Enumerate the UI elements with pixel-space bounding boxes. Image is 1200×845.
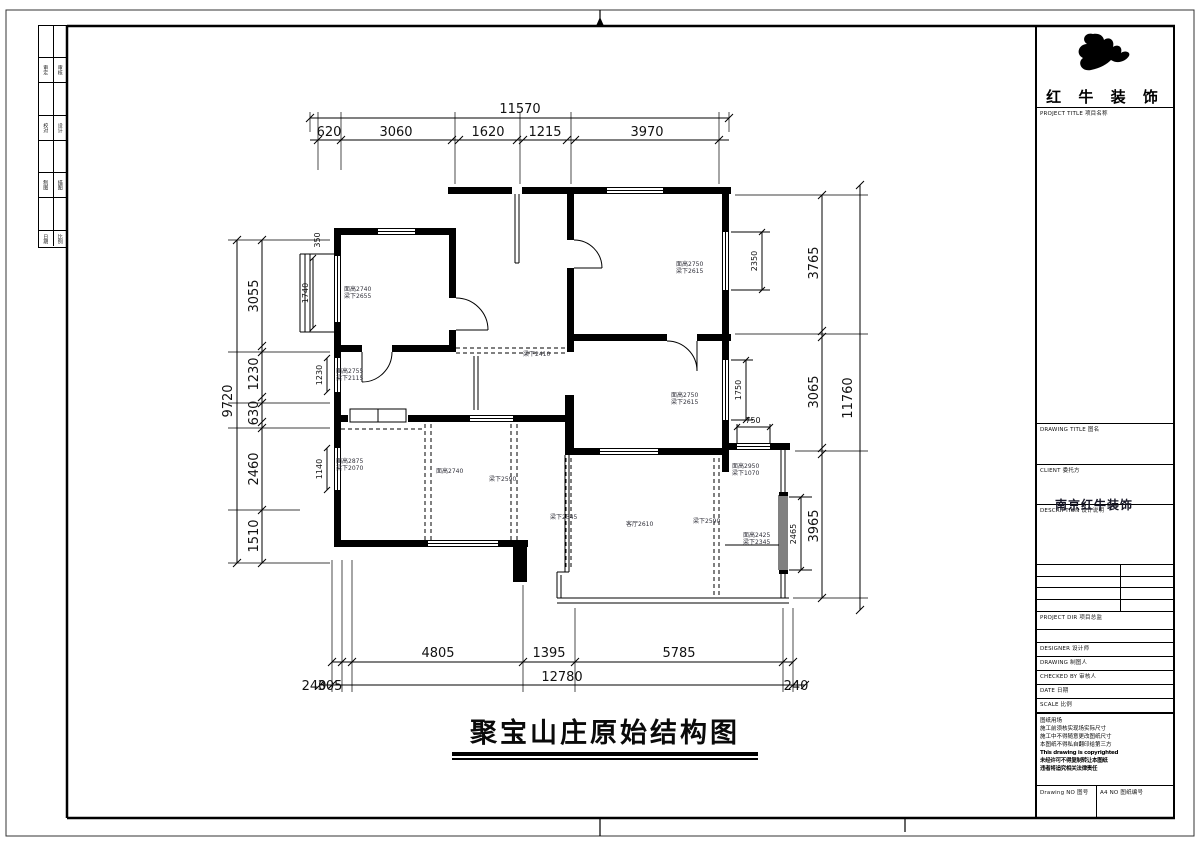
scale-row: SCALE 比例 [1037,699,1173,713]
drawing-sheet: 11570 620 3060 1620 1215 3970 9720 3055 … [0,0,1200,845]
window-750 [737,444,770,450]
note-line: This drawing is copyrighted [1040,749,1170,757]
strip-row: 审定 审核 [39,58,67,83]
beam-corridor [456,348,567,353]
strip-row-empty [39,83,67,116]
dim-1740 [310,255,316,331]
dim-label: 305 [318,679,343,694]
description-section: 南京红牛装饰 DESCRIPTION 设计说明 [1037,505,1173,565]
note-line: 未经许可不得复制转让本图纸 [1040,757,1170,765]
room-annotation: 梁下2590 [489,475,516,483]
date-row: DATE 日期 [1037,685,1173,699]
note-line: 图纸用场 [1040,717,1170,725]
revision-table [1037,565,1173,612]
room-annotation: 梁下2410 [523,350,550,358]
room-annotation: 面高2755 [336,367,363,375]
room-annotation: 面高2950 [732,462,759,470]
dim-label: 1750 [734,380,743,400]
dim-label: 1510 [247,519,262,552]
strip-cell: 审核 [54,58,68,82]
walls [334,187,790,582]
notes-section: 图纸用场 施工前须核实现场实际尺寸 施工中不得随意更改图纸尺寸 本图纸不得私自翻… [1037,713,1173,786]
door-topright-room [574,240,602,268]
dim-label: 3965 [807,509,822,542]
dim-label: 1230 [315,365,324,385]
room-annotation: 梁下2345 [743,538,770,546]
dim-label: 350 [313,232,322,247]
dim-label: 3970 [630,125,663,140]
dim-label: 9720 [221,384,236,417]
strip-cell: 日期 [39,231,54,246]
hall-door-leaf [474,356,478,410]
beam-lowerleft-1 [425,424,431,540]
company-stamp: 南京红牛装饰 [1055,496,1133,513]
dim-label: 12780 [541,670,582,685]
dim-label: 2460 [247,452,262,485]
dim-label: 620 [317,125,342,140]
note-line: 违者将追究相关法律责任 [1040,765,1170,773]
dim-label: 4805 [421,646,454,661]
dashed-beams [341,348,719,595]
dim-label: 1230 [247,357,262,390]
company-logo [1037,26,1173,86]
room-annotation: 梁下2590 [693,517,720,525]
dim-1230 [324,355,330,395]
window-living-right-2465 [779,495,787,570]
revision-strip: 审定 审核 校对 设计 制图 描图 日期 比例 [38,25,68,248]
strip-cell: 校对 [39,116,54,140]
dim-label: 630 [247,401,262,426]
door-entry-side [456,298,488,330]
dim-label: 3060 [379,125,412,140]
room-annotations: 面高2740 梁下2655 面高2750 梁下2615 面高2755 梁下211… [336,260,770,546]
dim-label: 1215 [528,125,561,140]
witness-top [310,112,729,184]
room-annotation: 梁下2615 [676,267,703,275]
entry-door-leaf [515,194,519,263]
room-annotation: 梁下2070 [336,464,363,472]
witness-left [228,240,330,563]
dim-1140 [324,445,330,493]
drawing-title-section: DRAWING TITLE 图名 [1037,424,1173,465]
note-line: 施工前须核实现场实际尺寸 [1040,725,1170,733]
drawing-no-section: Drawing NO 图号 A4 NO 图纸编号 [1037,786,1173,818]
checked-label: CHECKED BY 审核人 [1040,674,1096,680]
note-line: 施工中不得随意更改图纸尺寸 [1040,733,1170,741]
strip-row-empty [39,26,67,58]
strip-cell: 制图 [39,173,54,197]
title-underline-thick [452,752,758,756]
checked-row: CHECKED BY 审核人 [1037,671,1173,685]
spacer-row [1037,630,1173,643]
a4-no-label: A4 NO 图纸编号 [1100,790,1143,796]
dimension-lines [228,112,868,692]
strip-row: 制图 描图 [39,173,67,198]
beam-living-right [714,458,719,595]
dim-line-top [310,118,729,140]
scale-label: SCALE 比例 [1040,702,1072,708]
room-annotation: 梁下2115 [336,374,363,382]
room-annotation: 面高2750 [676,260,703,268]
bull-logo-icon [1073,30,1137,82]
project-title-label: PROJECT TITLE 项目名称 [1040,111,1108,117]
drawing-row: DRAWING 制图人 [1037,657,1173,671]
window-entry-top [607,188,663,194]
drawing-title-label: DRAWING TITLE 图名 [1040,427,1099,433]
project-title-section: PROJECT TITLE 项目名称 [1037,108,1173,424]
strip-row-empty [39,198,67,231]
strip-cell: 描图 [54,173,68,197]
room-annotation: 面高2750 [671,391,698,399]
room-annotation: 梁下2655 [344,292,371,300]
window-living-top [600,449,658,455]
room-annotation: 面高2740 [436,467,463,475]
window-left-bay-wall [335,256,341,322]
sliding-door-panel-2 [378,409,406,422]
project-dir-label: PROJECT DIR 项目总监 [1040,615,1102,621]
window-bottomleft [428,541,498,547]
main-frame [67,26,1175,818]
dim-label: 750 [745,416,760,425]
strip-row-empty [39,141,67,173]
room-annotation: 面高2875 [336,457,363,465]
drawing-label: DRAWING 制图人 [1040,660,1087,666]
room-annotation: 梁下2615 [671,398,698,406]
dim-label: 11570 [499,102,540,117]
dim-label: 3765 [807,246,822,279]
window-mid-partition [470,416,513,422]
project-dir-row: PROJECT DIR 项目总监 [1037,612,1173,630]
strip-row: 校对 设计 [39,116,67,141]
room-annotation: 梁下2345 [550,513,577,521]
strip-cell: 设计 [54,116,68,140]
window-room1-top [378,229,415,235]
top-center-mark [596,17,604,26]
room-annotation: 面高2425 [743,531,770,539]
designer-row: DESIGNER 设计师 [1037,643,1173,657]
dim-label: 2350 [750,251,759,271]
dim-label: 1740 [301,283,310,303]
window-right-1750 [723,360,729,420]
designer-label: DESIGNER 设计师 [1040,646,1089,652]
company-name: 红 牛 装 饰 [1037,86,1173,108]
drawing-no-label: Drawing NO 图号 [1040,790,1088,796]
dim-label: 240 [784,679,809,694]
strip-cell: 比例 [54,231,68,246]
door-swings [362,240,697,382]
drawing-title: 聚宝山庄原始结构图 [430,711,780,750]
title-block: 红 牛 装 饰 PROJECT TITLE 项目名称 DRAWING TITLE… [1035,26,1175,818]
title-underline-thin [452,758,758,760]
room-annotation: 梁下1070 [732,469,759,477]
dim-label: 11760 [841,377,856,418]
strip-row: 日期 比例 [39,231,67,246]
dim-label: 3055 [247,279,262,312]
room-annotation: 客厅2610 [626,520,653,528]
door-midleft-room [362,352,392,382]
room-annotation: 面高2740 [344,285,371,293]
dim-label: 1620 [471,125,504,140]
dim-label: 5785 [662,646,695,661]
window-right-2350 [723,232,729,290]
door-midright-room [667,341,697,371]
dim-label: 1140 [315,459,324,479]
dim-label: 1395 [532,646,565,661]
note-line: 本图纸不得私自翻印给第三方 [1040,741,1170,749]
client-label: CLIENT 委托方 [1040,468,1080,474]
date-label: DATE 日期 [1040,688,1068,694]
dim-label: 3065 [807,375,822,408]
strip-cell: 审定 [39,58,54,82]
dim-750 [734,424,773,443]
dim-label: 2465 [789,524,798,544]
sliding-door-panel-1 [350,409,378,422]
